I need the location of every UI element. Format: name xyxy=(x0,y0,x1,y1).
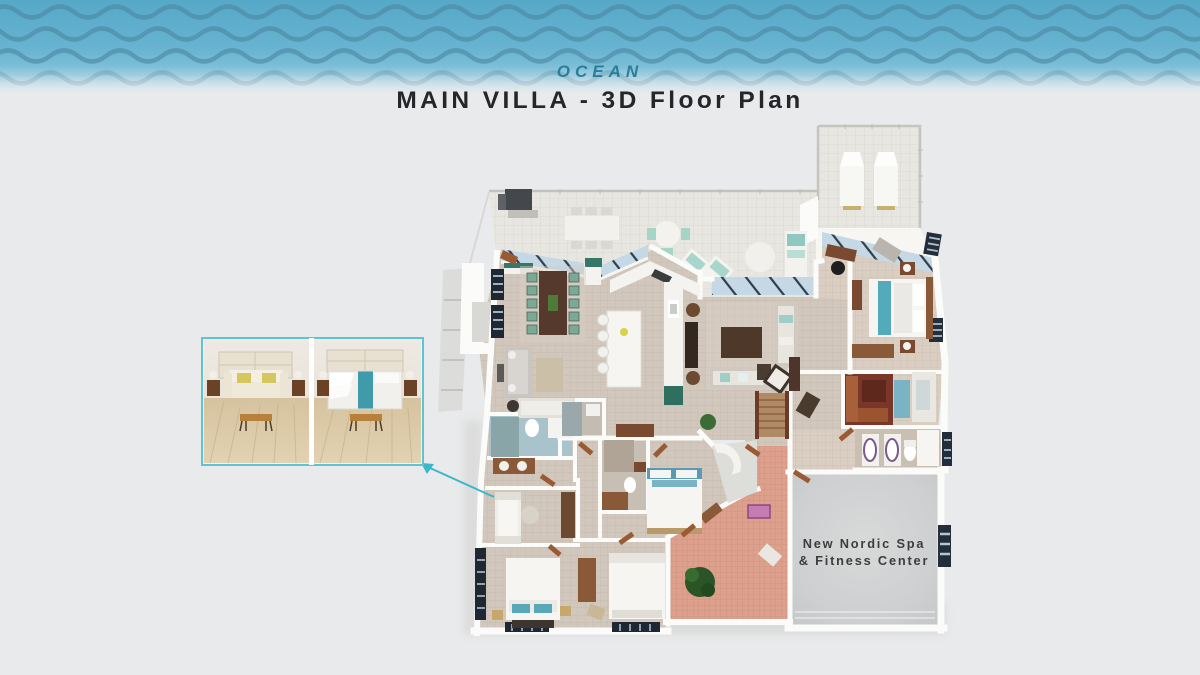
svg-text:& Fitness Center: & Fitness Center xyxy=(799,553,930,568)
svg-text:New Nordic Spa: New Nordic Spa xyxy=(803,536,926,551)
svg-text:OCEAN: OCEAN xyxy=(557,62,643,81)
svg-text:MAIN VILLA - 3D Floor Plan: MAIN VILLA - 3D Floor Plan xyxy=(396,87,803,114)
